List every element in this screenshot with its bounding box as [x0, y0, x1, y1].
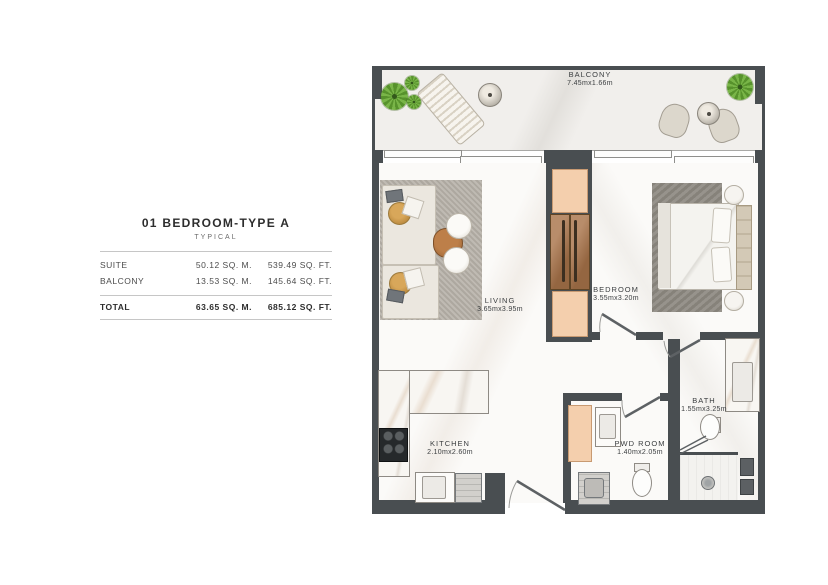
- page: { "info_panel": { "title": "01 BEDROOM-T…: [0, 0, 828, 585]
- total-sqft: 685.12 SQ. FT.: [252, 302, 332, 312]
- door-swings: [372, 62, 765, 517]
- area-sqm: 13.53 SQ. M.: [170, 276, 252, 286]
- area-row-balcony: BALCONY 13.53 SQ. M. 145.64 SQ. FT.: [100, 273, 332, 289]
- floor-plan: BALCONY 7.45mx1.66m: [372, 62, 765, 517]
- area-table: SUITE 50.12 SQ. M. 539.49 SQ. FT. BALCON…: [100, 251, 332, 296]
- total-label: TOTAL: [100, 302, 170, 312]
- area-row-suite: SUITE 50.12 SQ. M. 539.49 SQ. FT.: [100, 257, 332, 273]
- plan-title: 01 BEDROOM-TYPE A: [100, 216, 332, 230]
- area-row-total: TOTAL 63.65 SQ. M. 685.12 SQ. FT.: [100, 296, 332, 320]
- info-panel: 01 BEDROOM-TYPE A TYPICAL SUITE 50.12 SQ…: [100, 216, 332, 320]
- total-sqm: 63.65 SQ. M.: [170, 302, 252, 312]
- area-label: SUITE: [100, 260, 170, 270]
- area-sqft: 539.49 SQ. FT.: [252, 260, 332, 270]
- area-label: BALCONY: [100, 276, 170, 286]
- area-sqft: 145.64 SQ. FT.: [252, 276, 332, 286]
- area-sqm: 50.12 SQ. M.: [170, 260, 252, 270]
- plan-subtitle: TYPICAL: [100, 234, 332, 241]
